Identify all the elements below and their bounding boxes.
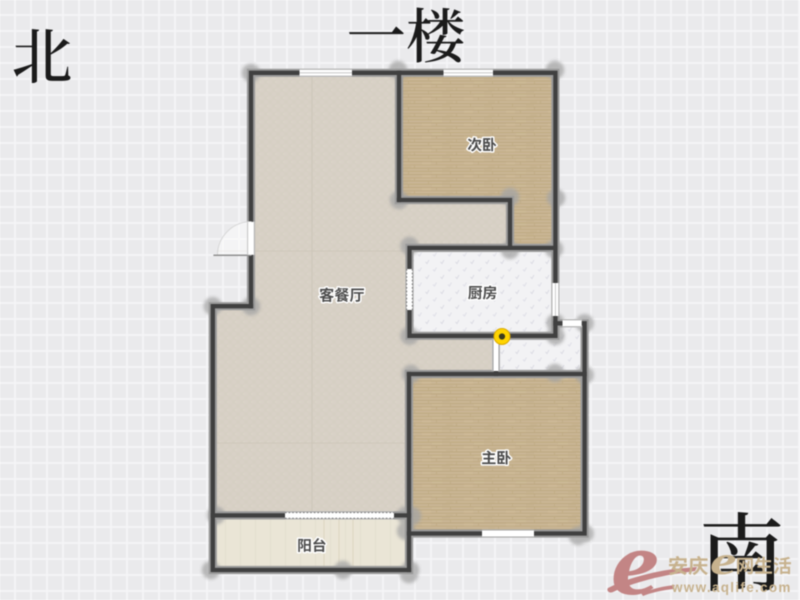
svg-text:www.aqlife.com: www.aqlife.com <box>671 580 792 595</box>
svg-text:e: e <box>710 539 737 583</box>
